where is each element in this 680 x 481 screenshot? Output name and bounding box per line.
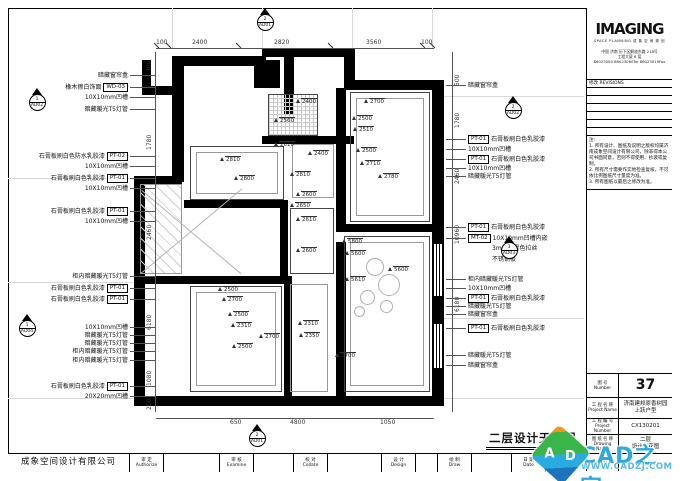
- sheet-number: 37: [619, 374, 672, 397]
- light-circle: [354, 306, 365, 317]
- annotation-left: 石膏板刷白色乳胶漆PT-01: [51, 382, 156, 391]
- signature-bar: 成象空间设计有限公司 审 定Authorize 审 核Examine 校 对Co…: [8, 453, 586, 472]
- ceiling-level: 2810: [220, 157, 241, 163]
- annotation-right: 暗藏窗帘盒: [446, 82, 498, 89]
- firm-address: 中国 济南 历下区解放东路 218号 工程大厦 6 层 86023050 860…: [587, 49, 672, 64]
- dim-text: 1780: [147, 135, 153, 150]
- ceiling-level: 2800: [234, 176, 255, 182]
- collate-label: 校 对Collate: [294, 454, 328, 472]
- elevation-marker: 1AD04: [16, 320, 38, 337]
- annotation-left: 柜内暗藏暖光T5灯管: [73, 273, 156, 280]
- ceiling-level: 2700: [335, 353, 356, 359]
- window: [433, 244, 443, 296]
- revision-row: [587, 128, 672, 135]
- annotation-left: 10X10mm凹槽: [85, 94, 156, 101]
- construction-line: [8, 282, 134, 283]
- ceiling-level: 2310: [298, 321, 319, 327]
- ceiling-level: 2400: [308, 151, 329, 157]
- annotation-right: 暗藏暖光T5灯管: [446, 352, 511, 359]
- ceiling-level: 2500: [356, 148, 377, 154]
- elevation-marker: 2AD02: [502, 102, 524, 119]
- revision-row: [587, 96, 672, 104]
- annotation-left: 暗藏暖光T5灯管: [85, 332, 156, 339]
- annotation-left: 10X10mm凹槽: [85, 324, 156, 331]
- annotation-left: 暗藏暖光T5灯管: [85, 106, 156, 113]
- wall-segment: [350, 80, 442, 90]
- project-number-row: 工 程 编 号Project Number CX130201: [587, 418, 672, 434]
- authorize-value: [164, 454, 220, 472]
- dim-text: 650: [230, 420, 241, 426]
- project-name-row: 工 程 名 称Project Name 济南建邦原香树园上跃户型: [587, 397, 672, 418]
- annotation-right: 暗藏暖光T5灯管: [446, 173, 511, 180]
- annotation-left: 石膏板刷白色防水乳胶漆PT-02: [39, 152, 156, 161]
- window: [433, 324, 443, 368]
- firm-logo-block: IMAGING SPACE PLANNING 成 象 空 间 规 划 中国 济南…: [587, 8, 672, 80]
- construction-line: [444, 398, 584, 399]
- design-label: 设 计Design: [382, 454, 416, 472]
- annotation-right: 10X10mm凹槽: [446, 285, 511, 292]
- elevation-marker: 1AD02: [26, 94, 48, 111]
- watermark-text: CAD之家: [580, 438, 680, 481]
- annotation-right: 柜内暗藏暖光T5灯管: [446, 276, 523, 283]
- sheet-number-row: 图 号Number 37: [587, 373, 672, 397]
- design-value: [416, 454, 438, 472]
- annotation-right: PT-01石膏板刷白色乳胶漆: [446, 324, 545, 333]
- dim-text: 200: [147, 399, 153, 410]
- duct-block: [254, 60, 280, 88]
- wall-segment: [262, 48, 354, 57]
- ceiling-level: 2500: [352, 116, 373, 122]
- project-name: 济南建邦原香树园上跃户型: [619, 398, 672, 418]
- examine-value: [254, 454, 294, 472]
- ceiling-level: 2560: [274, 118, 295, 124]
- annotation-right: PT-01石膏板刷白色乳胶漆: [446, 155, 545, 164]
- firm-logo: IMAGING: [587, 20, 672, 38]
- annotation-right: 暗藏窗帘盒: [446, 311, 498, 318]
- annotation-right: 暗藏暖光T5灯管: [446, 303, 511, 310]
- dim-text: 2460: [147, 225, 153, 240]
- dim-text: 2400: [192, 40, 207, 46]
- ceiling-level: 2810: [290, 172, 311, 178]
- annotation-left: 10X10mm凹槽: [85, 218, 156, 225]
- ceiling-level: 2500: [218, 287, 239, 293]
- ceiling-level: 2650: [290, 203, 311, 209]
- annotation-right: PT-01石膏板刷白色乳胶漆: [446, 294, 545, 303]
- ceiling-level: 2500: [232, 344, 253, 350]
- ceiling-level: 2600: [296, 192, 317, 198]
- wall-segment: [184, 200, 288, 208]
- light-circle: [360, 290, 375, 305]
- construction-line: [352, 8, 353, 48]
- construction-line: [172, 8, 173, 48]
- title-block: IMAGING SPACE PLANNING 成 象 空 间 规 划 中国 济南…: [586, 8, 672, 471]
- ceiling-level: 2610: [274, 142, 295, 148]
- wall-segment: [336, 224, 442, 232]
- ceiling-level: 5600: [345, 251, 366, 257]
- annotation-right: PT-01石膏板刷白色乳胶漆: [446, 223, 545, 232]
- section-marker: 2AD01: [254, 14, 276, 31]
- draw-value: [472, 454, 512, 472]
- title-block-spacer: [587, 190, 672, 373]
- wall-segment: [134, 276, 288, 284]
- dim-text: 100: [421, 40, 432, 46]
- annotation-left: 石膏板刷白色乳胶漆PT-01: [51, 207, 156, 216]
- project-number: CX130201: [619, 419, 672, 434]
- wall-segment: [172, 56, 266, 66]
- revision-row: [587, 120, 672, 128]
- dim-text: 1780: [455, 113, 461, 128]
- annotation-left: 石膏板刷白色乳胶漆PT-01: [51, 295, 156, 304]
- wall-segment: [280, 200, 288, 280]
- annotation-right: 10X10mm凹槽: [446, 165, 511, 172]
- ceiling-level: 2700: [364, 99, 385, 105]
- cube-letter-d: D: [565, 449, 576, 464]
- ceiling-level: 2600: [296, 248, 317, 254]
- annotation-right: 暗藏窗帘盒: [446, 362, 498, 369]
- ceiling-level: 2700: [222, 297, 243, 303]
- ceiling-level: 2510: [353, 127, 374, 133]
- annotation-left: 暗藏窗帘盒: [98, 72, 156, 79]
- cube-letter-a: A: [544, 447, 554, 462]
- annotation-left: 石膏板刷白色乳胶漆PT-01: [51, 174, 156, 183]
- wall-segment: [172, 56, 184, 182]
- annotation-left: 10X10mm凹槽: [85, 163, 156, 170]
- revision-row: [587, 112, 672, 120]
- dim-text: 100: [156, 40, 167, 46]
- firm-logo-subtitle: SPACE PLANNING 成 象 空 间 规 划: [587, 39, 672, 44]
- revision-row: [587, 88, 672, 96]
- ceiling-level: 5610: [345, 277, 366, 283]
- dim-text: 4800: [290, 420, 305, 426]
- authorize-label: 审 定Authorize: [130, 454, 164, 472]
- annotation-left: 橡木擦白饰面WD-03: [65, 83, 156, 92]
- ceiling-level: 2700: [259, 334, 280, 340]
- light-circle: [378, 274, 400, 296]
- drawing-sheet: 2400 2560 2610 2400 2810 2800 2810 2600 …: [0, 0, 680, 481]
- draw-label: 绘 制Draw: [438, 454, 472, 472]
- wall-segment: [336, 88, 346, 228]
- revisions-header: 修改 REVISIONS: [587, 80, 672, 88]
- annotation-left: 柜内暗藏暖光T5灯管: [73, 357, 156, 364]
- revision-row: [587, 104, 672, 112]
- elevation-marker: 3AD03: [498, 242, 520, 259]
- annotation-right: PT-01石膏板刷白色乳胶漆: [446, 135, 545, 144]
- collate-value: [328, 454, 382, 472]
- light-circle: [380, 300, 393, 313]
- ceiling-level: 2780: [378, 174, 399, 180]
- annotation-left: 10X10mm凹槽: [85, 185, 156, 192]
- dim-text: 3560: [366, 40, 381, 46]
- annotation-left: 暗藏暖光T5灯管: [85, 340, 156, 347]
- dim-line-top: [156, 48, 434, 49]
- ceiling-level: 2610: [296, 217, 317, 223]
- annotation-right: MT-0210X10mm凹槽内嵌: [446, 234, 548, 243]
- annotation-left: 柜内暗藏暖光T5灯管: [73, 348, 156, 355]
- dim-text: 1050: [380, 420, 395, 426]
- ceiling-level: 2310: [231, 323, 252, 329]
- ceiling-level: 2350: [299, 333, 320, 339]
- ceiling-level: 2500: [228, 312, 249, 318]
- ceiling-level: 5800: [342, 239, 363, 245]
- dim-text: 300: [147, 61, 153, 72]
- revisions-block: 修改 REVISIONS: [587, 80, 672, 136]
- light-circle: [366, 258, 384, 276]
- notes-block: 注: 1. 所有设计、图纸及说明之版权均属济南成象空间设计有限公司，除非得本公司…: [587, 136, 672, 190]
- annotation-right: 10X10mm凹槽: [446, 146, 511, 153]
- construction-line: [444, 318, 584, 319]
- company-name: 成象空间设计有限公司: [8, 454, 130, 472]
- examine-label: 审 核Examine: [220, 454, 254, 472]
- ceiling-level: 2710: [360, 161, 381, 167]
- annotation-left: 20X20mm凹槽: [85, 393, 156, 400]
- section-marker: 2AD01: [246, 430, 268, 447]
- ceiling-level: 2400: [296, 99, 317, 105]
- watermark-url: WWW.CADZJ.COM: [581, 462, 673, 472]
- dim-text: 2820: [274, 40, 289, 46]
- annotation-left: 石膏板刷白色乳胶漆PT-01: [51, 284, 156, 293]
- ceiling-level: 5600: [388, 267, 409, 273]
